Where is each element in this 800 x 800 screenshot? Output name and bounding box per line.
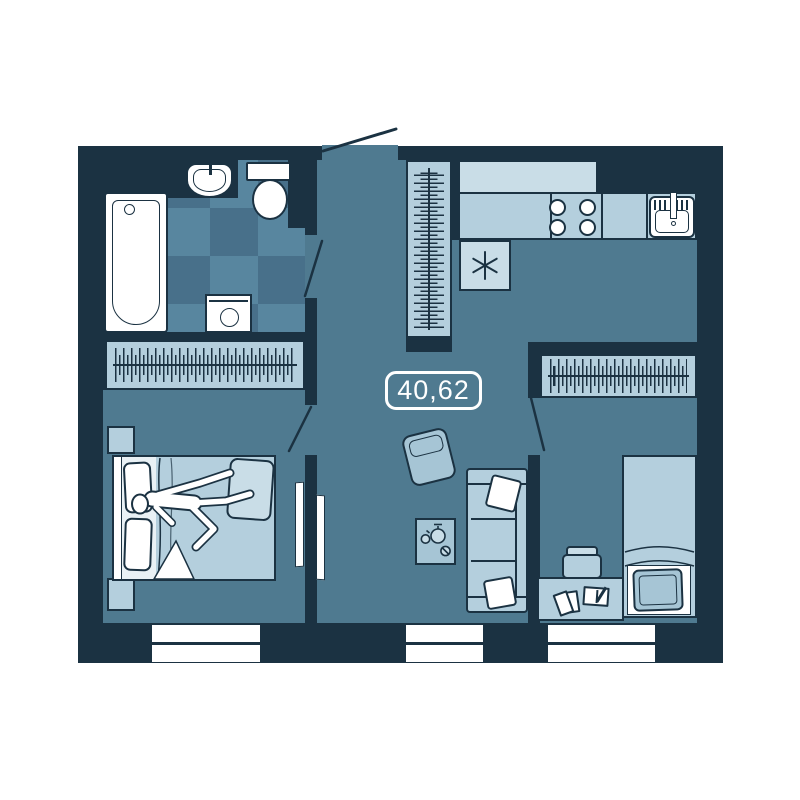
blanket-fold-line bbox=[158, 458, 160, 578]
stove-burner bbox=[579, 199, 596, 216]
double-bed bbox=[112, 455, 276, 581]
tv-bedroom-left bbox=[295, 482, 304, 568]
nightstand bbox=[107, 426, 135, 454]
stove-burner bbox=[549, 199, 566, 216]
toilet-bowl bbox=[252, 179, 288, 220]
sink-drainboard bbox=[676, 200, 690, 210]
snowflake-icon bbox=[461, 242, 509, 289]
kitchen-corner-wall bbox=[598, 146, 697, 192]
tea-set-icons bbox=[417, 520, 454, 563]
sink-drainboard bbox=[654, 200, 668, 210]
pillow-inner-line bbox=[638, 574, 677, 605]
closet-rail bbox=[428, 168, 430, 330]
sofa-cushion-seam bbox=[471, 518, 516, 520]
bathtub bbox=[104, 192, 168, 333]
stove-burner bbox=[549, 219, 566, 236]
window bbox=[548, 625, 655, 662]
sofa-cushion-seam bbox=[471, 560, 516, 562]
desk bbox=[537, 577, 624, 621]
washing-machine-door bbox=[220, 308, 239, 327]
bedroom-left-door-opening bbox=[305, 405, 317, 455]
nightstand bbox=[107, 578, 135, 611]
desk-chair-seat bbox=[562, 554, 602, 579]
closet-rail bbox=[113, 364, 297, 366]
tv-living-room bbox=[316, 495, 325, 581]
fridge bbox=[459, 240, 511, 291]
bathroom-door-opening bbox=[305, 235, 317, 298]
closet-hallway-end-wall bbox=[406, 338, 452, 352]
counter-divider bbox=[646, 194, 648, 238]
apartment-floor-plan: 40,62 bbox=[0, 0, 800, 800]
closet-rail bbox=[548, 375, 689, 377]
sofa bbox=[466, 468, 528, 613]
area-label-badge: 40,62 bbox=[385, 371, 482, 410]
stove-burner bbox=[579, 219, 596, 236]
closet-hallway bbox=[406, 160, 452, 338]
window bbox=[406, 625, 483, 662]
kitchen-faucet bbox=[670, 192, 677, 219]
bathtub-inner bbox=[112, 200, 160, 325]
entry-opening bbox=[322, 145, 398, 161]
window bbox=[152, 625, 260, 662]
washing-machine-lid-line bbox=[209, 300, 248, 302]
bathtub-drain bbox=[124, 204, 135, 215]
coffee-table bbox=[415, 518, 456, 565]
washing-machine bbox=[205, 294, 252, 333]
armchair-back-cushion bbox=[408, 433, 445, 458]
sofa-pillow bbox=[483, 576, 518, 611]
teapot-icon bbox=[431, 529, 445, 543]
sink-tap bbox=[209, 162, 212, 175]
counter-divider bbox=[601, 194, 603, 238]
bedroom-right-door-opening bbox=[528, 398, 540, 455]
bathroom-sink bbox=[186, 163, 233, 198]
single-bed bbox=[622, 455, 697, 618]
cup-icon bbox=[421, 535, 429, 543]
closet-bedroom-right bbox=[540, 354, 697, 398]
person-figure bbox=[132, 473, 250, 547]
kitchen-counter-upper bbox=[458, 160, 598, 194]
kitchen-sink bbox=[649, 196, 695, 238]
single-bed-pillow bbox=[632, 568, 683, 612]
kitchen-sink-drain bbox=[671, 221, 676, 226]
person-head bbox=[132, 495, 148, 514]
closet-bedroom-left bbox=[105, 340, 305, 390]
bed-details bbox=[114, 457, 274, 579]
area-label: 40,62 bbox=[397, 375, 470, 406]
